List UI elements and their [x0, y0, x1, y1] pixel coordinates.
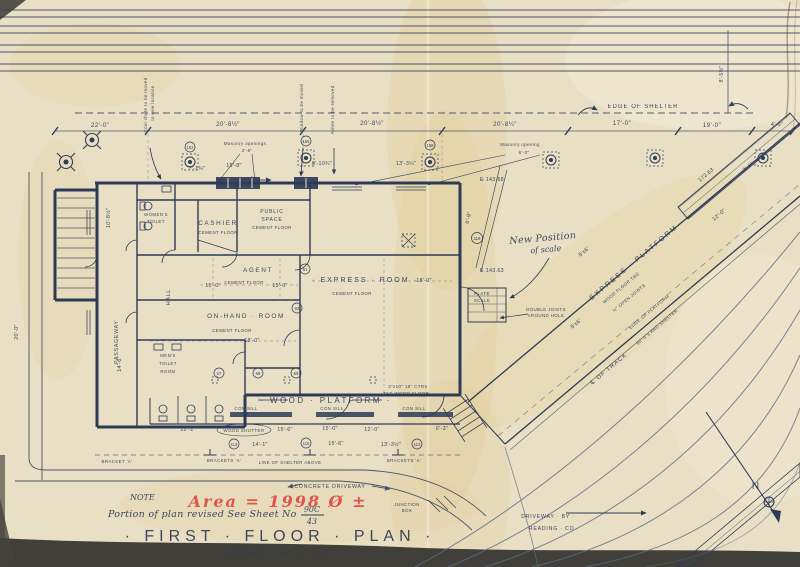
- masonry-note-right-2: 6'-3": [519, 150, 530, 155]
- dim-b2-1: 14'-1": [252, 442, 268, 448]
- public-floor-label: CEMENT FLOOR: [252, 225, 292, 230]
- express-room-label: · EXPRESS · ROOM ·: [312, 277, 418, 284]
- note-label: NOTE: [129, 493, 155, 502]
- wood-platform-label: · WOOD · PLATFORM ·: [260, 396, 391, 405]
- masonry-note-left-2: 3'-6": [242, 148, 253, 153]
- tag-113: 113: [231, 442, 238, 447]
- ashes-removed-note: Ashes to be removed: [330, 85, 335, 134]
- onhand-floor-label: CEMENT FLOOR: [212, 328, 252, 333]
- platform-joist-note-1: 3"x10" 18" CTRS: [388, 384, 427, 389]
- agent-dim-1: 15'-0": [205, 283, 221, 289]
- mens-toilet-label-3: ROOM: [160, 369, 175, 374]
- dim-left-20: 20'-0": [14, 324, 20, 340]
- con-sill-label-2: CON SILL: [320, 406, 343, 411]
- scale-box-label-2: SCALE: [474, 298, 490, 303]
- junction-box-label-1: JUNCTION: [394, 502, 419, 507]
- dim-b1-2: 15'-6": [277, 427, 293, 433]
- window-moved-note: Window to be moved: [299, 84, 304, 132]
- hall-label: HALL: [166, 289, 172, 305]
- scale-box-label-1: PLATE: [474, 291, 490, 296]
- mens-toilet-label-1: MEN'S: [160, 353, 176, 358]
- tag-116: 116: [474, 236, 481, 241]
- onhand-room-label: ON-HAND · ROOM: [207, 313, 285, 320]
- brackets-a-right: BRACKETS 'A': [387, 458, 421, 463]
- north-label: N: [752, 481, 760, 492]
- elev-143-63: E 143.63: [480, 268, 504, 274]
- driveway-by-label-1: DRIVEWAY · BY ·: [521, 514, 575, 520]
- dim-top-2: 20'-8½": [216, 121, 240, 128]
- coal-chute-note-1: Coal chute to be moved: [143, 77, 148, 132]
- cashier-floor-label: CEMENT FLOOR: [198, 230, 238, 235]
- concrete-driveway-label: CONCRETE DRIVEWAY: [294, 484, 365, 490]
- dim-b1-1: 12'-1": [180, 427, 196, 433]
- dim-top-5: 17'-0": [613, 120, 631, 127]
- junction-box-label-2: BOX: [402, 508, 412, 513]
- tag-158: 158: [426, 143, 434, 148]
- dim-19-8: 19'-8": [226, 163, 242, 169]
- dim-left-14: 14'-6": [117, 356, 123, 372]
- brackets-a-mid: BRACKETS 'A': [207, 458, 241, 463]
- dim-6-10: 6'-10¾": [312, 161, 332, 167]
- area-annotation-red: Area = 1998 Ø ±: [187, 492, 368, 511]
- edge-of-shelter-label: EDGE OF SHELTER: [608, 104, 679, 110]
- platform-joist-note-2: T&G WOOD FLOOR: [383, 391, 429, 396]
- express-floor-label: CEMENT FLOOR: [332, 291, 372, 296]
- dim-b1-4: 12'-0": [364, 427, 380, 433]
- masonry-note-right-1: Masonry opening: [500, 142, 540, 147]
- con-sill-label-3: CON SILL: [402, 406, 425, 411]
- driveway-by-label-2: READING · CO ·: [529, 526, 579, 532]
- dim-left-10: 10'-8½": [105, 208, 112, 228]
- tag-114: 114: [414, 442, 421, 447]
- agent-label: AGENT: [243, 267, 273, 274]
- cashier-label: CASHIER: [198, 220, 238, 227]
- onhand-dim: 18'-0": [244, 338, 260, 344]
- express-dim: 18'-0": [416, 278, 432, 284]
- dim-top-4: 20'-8¼": [493, 121, 517, 128]
- sheet-number-denominator: 43: [306, 517, 317, 526]
- tag-115: 115: [303, 441, 310, 446]
- dim-top-1: 22'-0": [91, 122, 109, 129]
- drawing-scale: · SCALE · ⅛" = 1'-0" ·: [220, 548, 347, 558]
- dim-13-3: 13'-3¼": [396, 161, 416, 167]
- tag-152: 152: [186, 145, 194, 150]
- agent-floor-label: CEMENT FLOOR: [224, 280, 264, 285]
- dim-b2-2: 15'-6": [328, 441, 344, 447]
- dim-b1-5: 6'-3": [436, 426, 448, 432]
- drawing-title: · FIRST · FLOOR · PLAN ·: [125, 528, 436, 545]
- coal-chute-note-2: to new location: [150, 85, 155, 120]
- agent-dim-2: 15'-0": [272, 283, 288, 289]
- public-space-label-2: SPACE: [261, 217, 282, 223]
- dim-b1-3: 15'-0": [322, 426, 338, 432]
- mens-toilet-label-2: TOILET: [159, 361, 177, 366]
- womens-toilet-label-1: WOMEN'S: [144, 212, 168, 217]
- tag-83: 83: [295, 306, 300, 311]
- con-sill-label-1: CON SILL: [234, 406, 257, 411]
- double-joists-note-1: DOUBLE JOISTS: [526, 307, 566, 312]
- dim-top-6: 19'-0": [703, 122, 721, 129]
- blueprint-canvas: 22'-0" 20'-8½" 20'-8½" 20'-8¼" 17'-0" 19…: [0, 0, 800, 567]
- tag-68: 68: [256, 371, 261, 376]
- tag-69: 69: [294, 371, 299, 376]
- dim-vert-8-5: 8'-5½": [718, 65, 725, 82]
- line-of-shelter-label: LINE OF SHELTER ABOVE: [259, 460, 322, 465]
- womens-toilet-label-2: TOILET: [147, 219, 165, 224]
- tag-81: 81: [303, 267, 308, 272]
- public-space-label-1: PUBLIC: [260, 209, 284, 215]
- masonry-note-left-1: Masonry openings: [224, 141, 267, 146]
- bracket-a-left: BRACKET 'A': [102, 459, 133, 464]
- tag-67: 67: [217, 371, 222, 376]
- dim-b2-3: 13'-3½": [381, 441, 401, 448]
- elev-143-68: E 143.68: [480, 177, 504, 183]
- wood-shutter-label: WOOD SHUTTER: [224, 428, 265, 433]
- blueprint-page: 22'-0" 20'-8½" 20'-8½" 20'-8¼" 17'-0" 19…: [0, 0, 800, 567]
- double-joists-note-2: AROUND HOLE: [528, 313, 565, 318]
- dim-top-3: 20'-8½": [360, 120, 384, 127]
- tag-156: 156: [302, 139, 310, 144]
